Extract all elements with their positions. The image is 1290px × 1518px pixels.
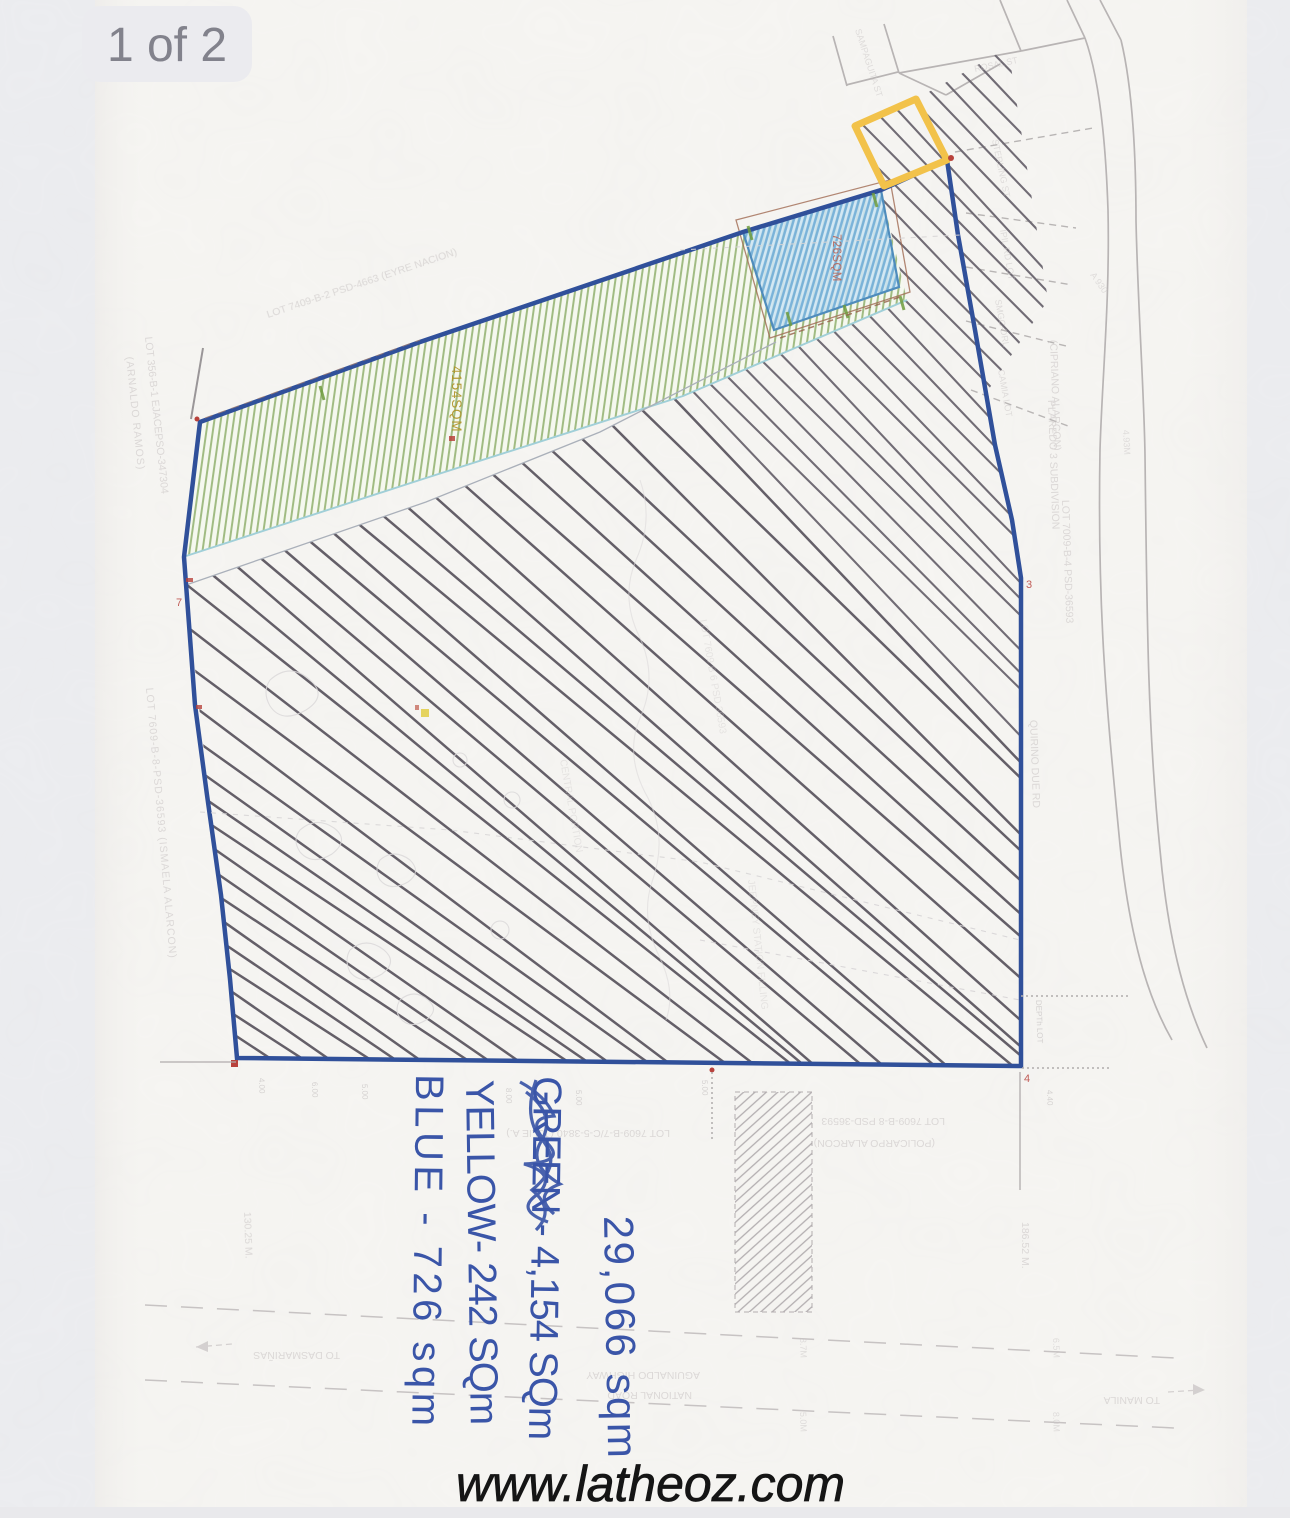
svg-text:4.00: 4.00 [257, 1078, 267, 1094]
svg-text:186.52 M.: 186.52 M. [1019, 1222, 1031, 1269]
svg-text:130.25 M.: 130.25 M. [241, 1212, 255, 1259]
svg-text:8.0M: 8.0M [1051, 1412, 1062, 1432]
svg-text:LOT 7609-B-8 PSD-36593: LOT 7609-B-8 PSD-36593 [821, 1115, 945, 1127]
svg-text:6.00: 6.00 [310, 1082, 320, 1098]
svg-text:BLUE - 726 sqm: BLUE - 726 sqm [403, 1074, 451, 1431]
svg-text:TO DASMARIÑAS: TO DASMARIÑAS [253, 1349, 340, 1362]
svg-text:www.latheoz.com: www.latheoz.com [456, 1456, 845, 1512]
svg-text:4154SQM: 4154SQM [449, 366, 464, 432]
svg-text:TO MANILA: TO MANILA [1104, 1394, 1160, 1406]
svg-text:5.00: 5.00 [360, 1084, 370, 1100]
svg-text:3: 3 [1026, 579, 1032, 591]
svg-text:YELLOW- 242 SQm: YELLOW- 242 SQm [457, 1080, 506, 1425]
svg-text:4.40: 4.40 [1045, 1090, 1055, 1106]
svg-text:4: 4 [1024, 1073, 1030, 1085]
svg-text:4.93M: 4.93M [1121, 430, 1132, 456]
svg-text:DEPTh LOT: DEPTh LOT [1034, 1000, 1045, 1044]
svg-text:1 of 2: 1 of 2 [107, 19, 227, 72]
svg-text:5.00: 5.00 [574, 1090, 584, 1106]
svg-text:6.5M: 6.5M [1051, 1338, 1062, 1358]
svg-text:5.0M: 5.0M [798, 1412, 809, 1432]
svg-text:(POLICARPO ALARCON): (POLICARPO ALARCON) [814, 1137, 935, 1149]
svg-text:8.7M: 8.7M [798, 1338, 809, 1358]
svg-text:8.00: 8.00 [504, 1088, 514, 1104]
svg-text:7: 7 [176, 597, 182, 609]
svg-text:726SQM: 726SQM [830, 234, 842, 282]
svg-text:29,066 sqm: 29,066 sqm [595, 1215, 646, 1460]
svg-text:5.00: 5.00 [700, 1080, 710, 1096]
